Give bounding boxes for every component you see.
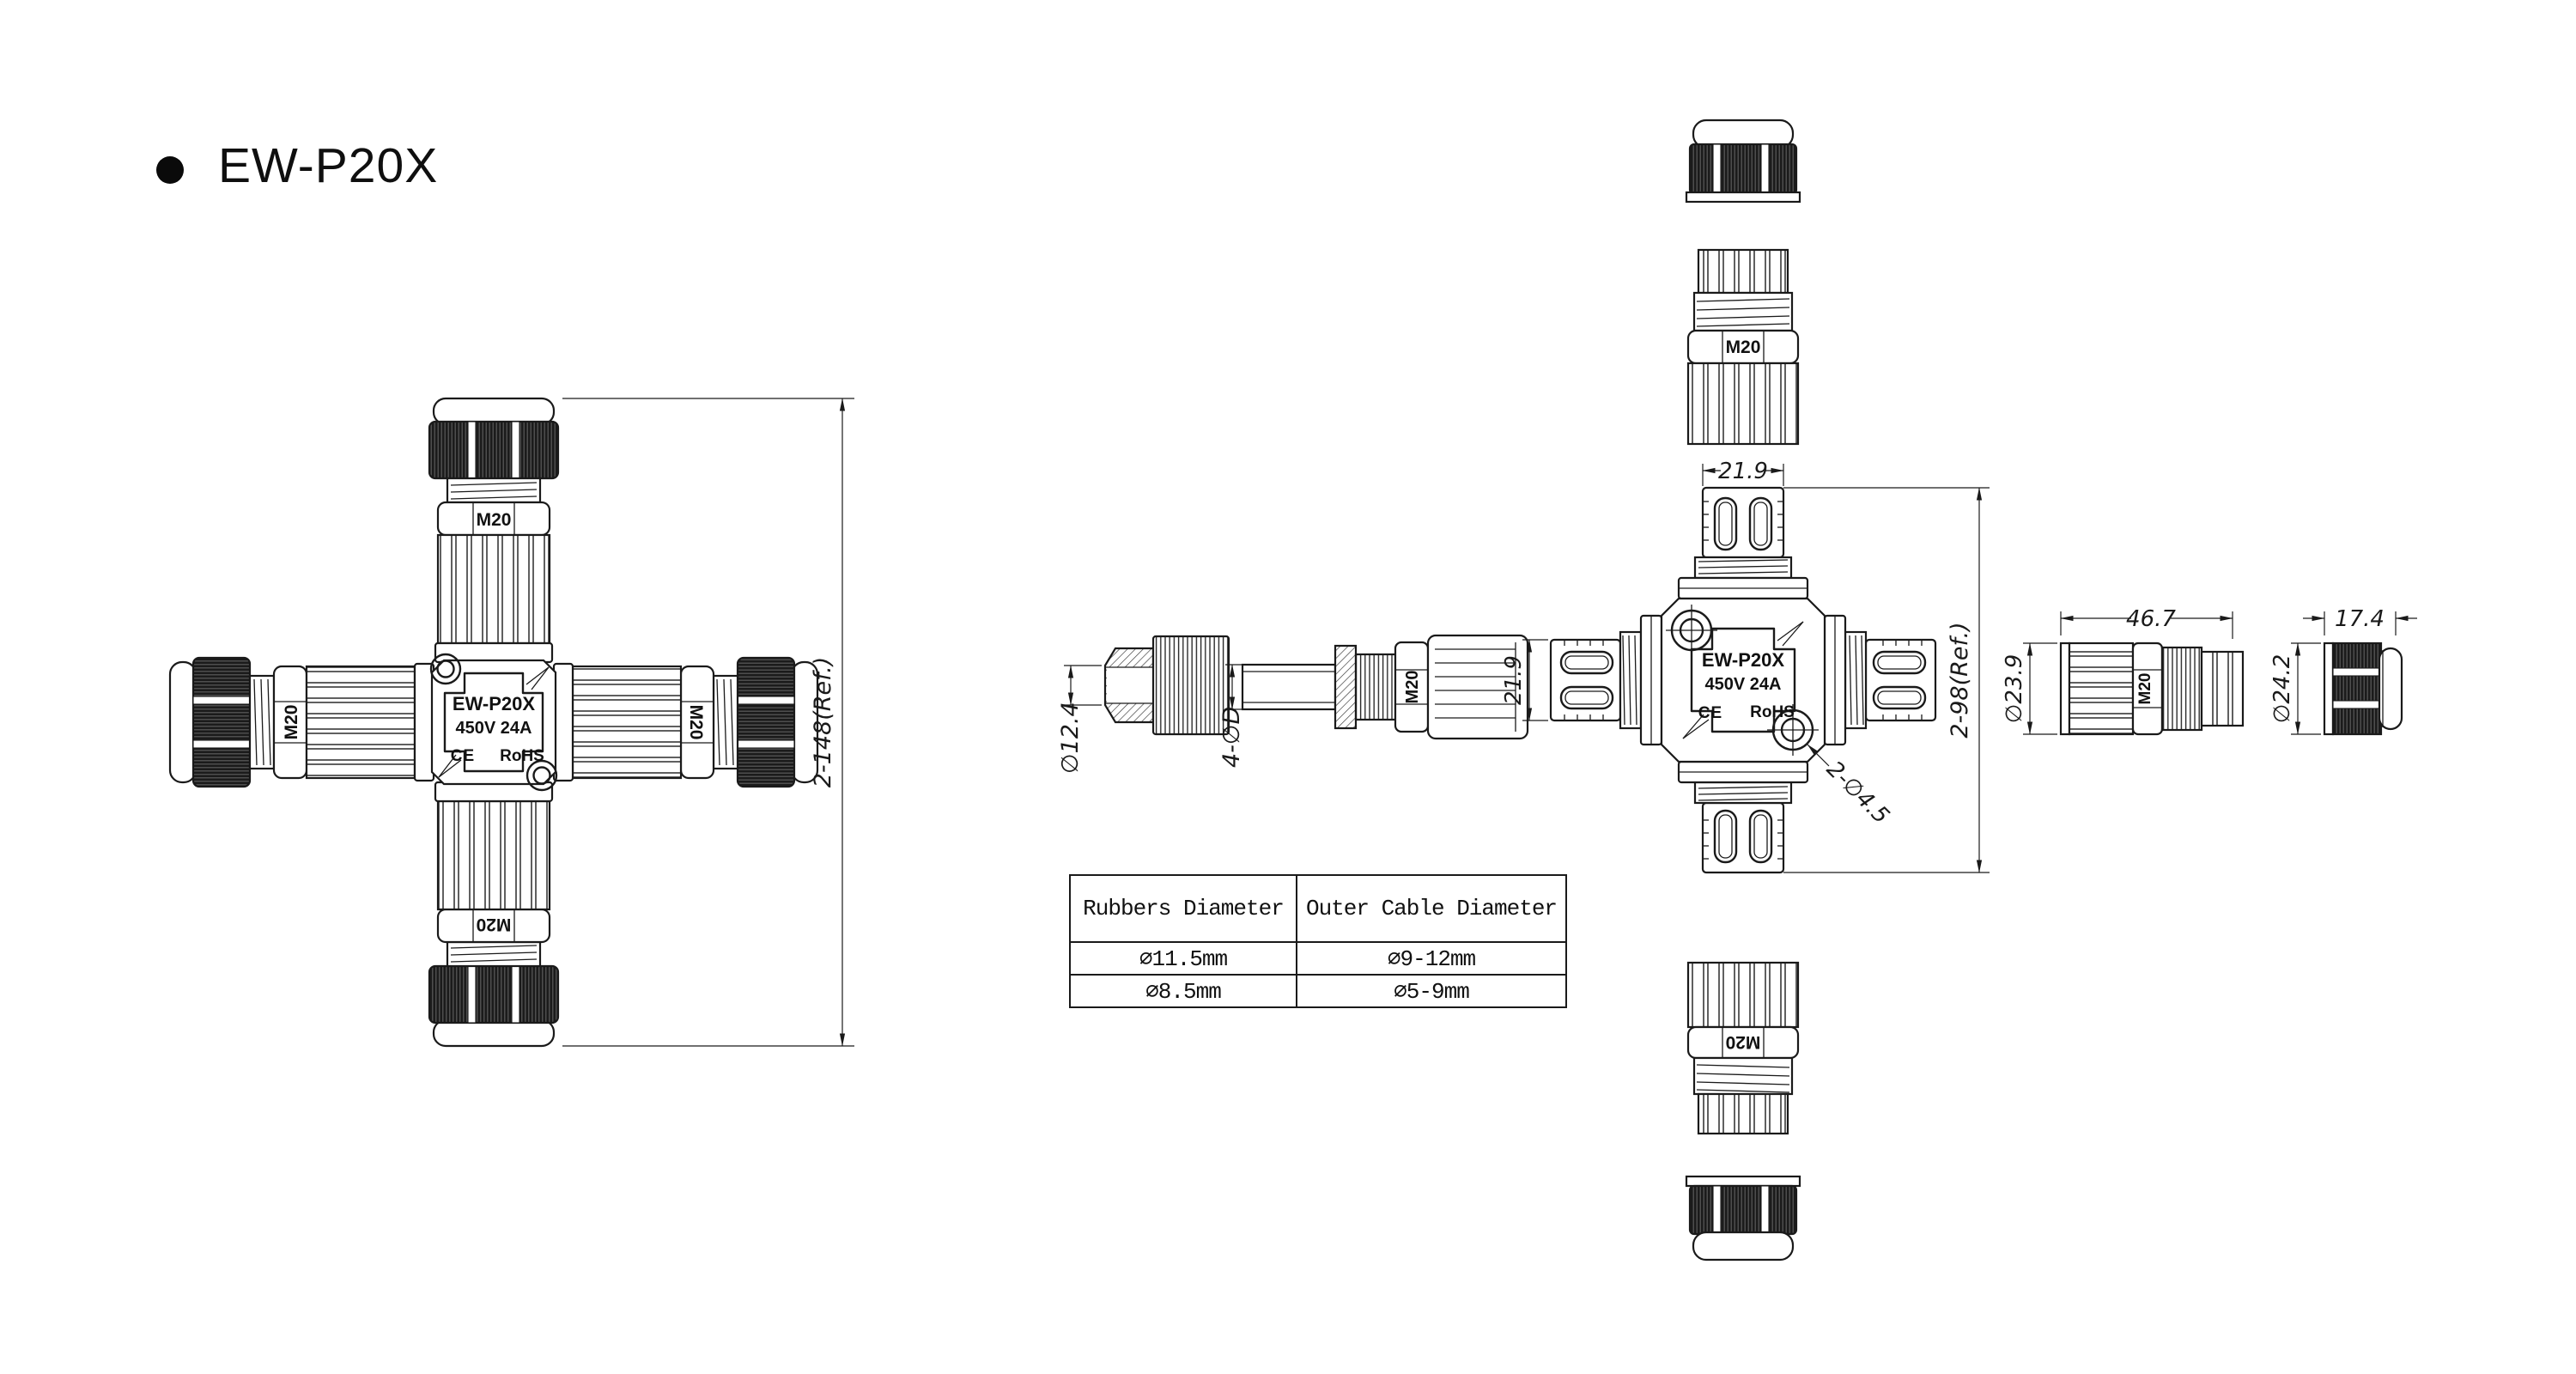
dim-cap-diameter-label: ∅24.2 bbox=[2269, 654, 2295, 724]
dim-gland-diameter: ∅23.9 bbox=[2002, 643, 2057, 734]
page-title: EW-P20X bbox=[218, 137, 438, 194]
end-cap bbox=[2061, 643, 2069, 734]
dim-cap-diameter: ∅24.2 bbox=[2269, 643, 2321, 734]
rohs-label: RoHS bbox=[1750, 703, 1795, 721]
dim-gland-holes-label: 4-∅D bbox=[1218, 707, 1245, 768]
m20-label: M20 bbox=[2136, 673, 2154, 705]
cap-flange bbox=[2324, 643, 2333, 734]
cap-front-view-top bbox=[1686, 120, 1800, 202]
right-arm bbox=[554, 658, 817, 787]
dim-screw-holes: 2-∅4.5 bbox=[1807, 745, 1894, 830]
ce-mark: CE bbox=[451, 747, 475, 765]
bullet-icon bbox=[156, 156, 184, 184]
bottom-arm bbox=[429, 782, 558, 1046]
dim-cap-length: 17.4 bbox=[2303, 606, 2417, 635]
ribbed-barrel bbox=[1688, 963, 1798, 1027]
rating-label: 450V 24A bbox=[456, 719, 532, 738]
bottom-terminal-arm bbox=[1679, 762, 1807, 872]
cell-rubber-2: ∅8.5mm bbox=[1070, 975, 1297, 1007]
thread-section bbox=[2162, 647, 2202, 730]
dim-arm-width-top: 21.9 bbox=[1703, 459, 1783, 486]
gland-side-view: 46.7 ∅23.9 M20 bbox=[1992, 586, 2267, 757]
dim-cap-length-label: 17.4 bbox=[2335, 606, 2385, 632]
ribbed-top bbox=[1698, 250, 1788, 293]
dim-gland-length: 46.7 bbox=[2061, 606, 2233, 639]
dim-overall-span-label: 2-148(Ref.) bbox=[810, 657, 836, 788]
dim-gland-holes: 4-∅D bbox=[1218, 665, 1245, 768]
dim-arm-width-left: 21.9 bbox=[1501, 640, 1548, 720]
header-outer-cable-diameter: Outer Cable Diameter bbox=[1297, 875, 1566, 942]
right-terminal-arm bbox=[1825, 616, 1935, 745]
dim-seal-diameter-label: ∅12.4 bbox=[1057, 702, 1084, 774]
ribbed-barrel bbox=[2069, 643, 2133, 734]
knurled-nut bbox=[1690, 144, 1796, 194]
cell-cable-2: ∅5-9mm bbox=[1297, 975, 1566, 1007]
body-exploded-view: M20 EW-P20X 450V 24A CE RoHS bbox=[1498, 101, 2048, 1278]
spec-table: Rubbers Diameter Outer Cable Diameter ∅1… bbox=[1069, 874, 1567, 1008]
dim-seal-diameter: ∅12.4 bbox=[1057, 666, 1102, 774]
ce-mark: CE bbox=[1698, 704, 1722, 722]
top-terminal-arm bbox=[1679, 488, 1807, 599]
dim-arm-width-top-label: 21.9 bbox=[1718, 459, 1768, 484]
ribbed-end bbox=[2202, 652, 2243, 726]
dim-screw-holes-label: 2-∅4.5 bbox=[1821, 757, 1894, 830]
m20-label: M20 bbox=[1726, 337, 1761, 357]
gland-threads bbox=[1356, 654, 1395, 720]
model-label: EW-P20X bbox=[453, 693, 535, 714]
dim-arm-width-left-label: 21.9 bbox=[1501, 655, 1527, 705]
dim-gland-length-label: 46.7 bbox=[2126, 606, 2176, 632]
rating-label: 450V 24A bbox=[1705, 675, 1782, 694]
rohs-label: RoHS bbox=[500, 747, 544, 765]
table-header-row: Rubbers Diameter Outer Cable Diameter bbox=[1070, 875, 1566, 942]
assembled-front-view: M20 EW-P20X 450V 24A CE RoHS bbox=[167, 383, 872, 1061]
gland-front-view-top: M20 bbox=[1688, 250, 1798, 444]
cap-front-view-bottom bbox=[1686, 1176, 1800, 1260]
table-row: ∅11.5mm ∅9-12mm bbox=[1070, 942, 1566, 975]
table-row: ∅8.5mm ∅5-9mm bbox=[1070, 975, 1566, 1007]
knurled-nut bbox=[2333, 643, 2381, 734]
cap-flange bbox=[1686, 192, 1800, 202]
gland-front-view-bottom: M20 bbox=[1688, 963, 1798, 1134]
gland-flange bbox=[1335, 646, 1356, 728]
top-arm bbox=[429, 398, 558, 662]
knurled-nut bbox=[1690, 1186, 1796, 1234]
cell-rubber-1: ∅11.5mm bbox=[1070, 942, 1297, 975]
cap-side-view: 17.4 ∅24.2 bbox=[2258, 586, 2464, 757]
left-arm bbox=[170, 658, 434, 787]
m20-label: M20 bbox=[1403, 671, 1422, 704]
m20-label-inverted: M20 bbox=[1726, 1032, 1761, 1052]
drawing-canvas: EW-P20X M20 bbox=[0, 0, 2576, 1374]
cap-flange bbox=[1686, 1176, 1800, 1186]
dim-body-span-label: 2-98(Ref.) bbox=[1947, 622, 1973, 738]
dome-cap bbox=[1693, 1232, 1793, 1260]
dim-gland-diameter-label: ∅23.9 bbox=[2002, 654, 2027, 724]
ribbed-bottom bbox=[1698, 1094, 1788, 1134]
header-rubbers-diameter: Rubbers Diameter bbox=[1070, 875, 1297, 942]
model-label: EW-P20X bbox=[1702, 649, 1784, 671]
ribbed-barrel bbox=[1688, 363, 1798, 444]
left-terminal-arm bbox=[1551, 616, 1662, 745]
cell-cable-1: ∅9-12mm bbox=[1297, 942, 1566, 975]
